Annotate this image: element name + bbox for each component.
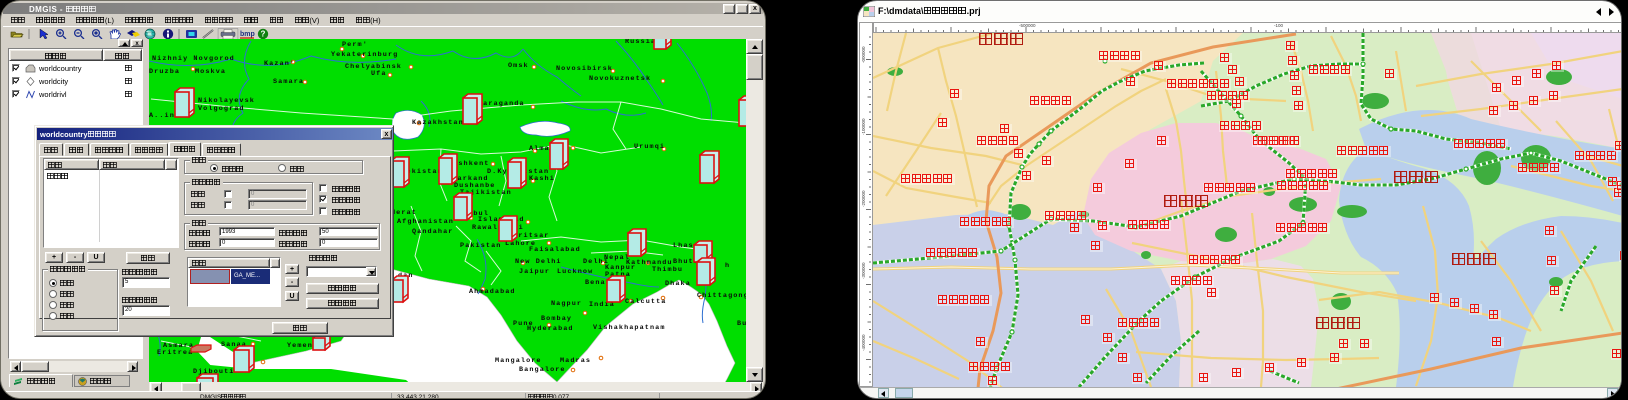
svg-text:Pakistan: Pakistan — [460, 242, 501, 250]
svg-text:Russia: Russia — [625, 39, 656, 46]
svg-text:Chittagong: Chittagong — [697, 292, 746, 300]
svg-text:Nagpur: Nagpur — [551, 300, 582, 308]
svg-text:New Delhi: New Delhi — [515, 258, 562, 266]
svg-text:-100000: -100000 — [861, 118, 866, 135]
svg-text:Kazan': Kazan' — [264, 60, 295, 68]
svg-text:-300000: -300000 — [861, 262, 866, 279]
svg-text:Novokuznetsk: Novokuznetsk — [589, 75, 651, 83]
svg-text:Volgograd: Volgograd — [198, 105, 245, 113]
svg-text:Nizhniy Novgorod: Nizhniy Novgorod — [152, 55, 235, 63]
svg-text:Moskva: Moskva — [195, 68, 226, 76]
svg-text:Karaganda: Karaganda — [478, 100, 525, 108]
svg-text:-400000: -400000 — [861, 334, 866, 351]
svg-text:Madras: Madras — [560, 357, 591, 365]
svg-text:Urumqi: Urumqi — [634, 143, 665, 151]
svg-text:Burma: Burma — [737, 320, 746, 328]
svg-text:Druzba: Druzba — [149, 68, 180, 76]
svg-text:-200000: -200000 — [861, 190, 866, 207]
svg-text:Qandahar: Qandahar — [412, 228, 453, 236]
svg-text:Yekaterinburg: Yekaterinburg — [331, 51, 398, 59]
svg-text:Ufa: Ufa — [371, 70, 387, 78]
svg-text:Calcutta: Calcutta — [625, 298, 666, 306]
svg-text:h: h — [725, 262, 730, 270]
svg-text:A..in: A..in — [149, 112, 175, 120]
svg-text:Omsk: Omsk — [508, 62, 529, 70]
svg-text:Mangalore: Mangalore — [495, 357, 542, 365]
svg-text:Faisalabad: Faisalabad — [529, 246, 581, 254]
svg-text:Jaipur: Jaipur — [519, 268, 550, 276]
svg-text:?: ? — [261, 30, 266, 39]
svg-text:Vishakhapatnam: Vishakhapatnam — [593, 324, 666, 332]
svg-text:Kashi: Kashi — [529, 175, 555, 183]
svg-text:Novosibirsk: Novosibirsk — [556, 65, 613, 73]
svg-text:Yemen: Yemen — [287, 342, 313, 350]
svg-text:bmp: bmp — [240, 31, 255, 38]
svg-text:Perm': Perm' — [342, 41, 368, 49]
svg-text:Bombay: Bombay — [541, 315, 572, 323]
svg-text:Herat: Herat — [391, 209, 417, 217]
svg-text:Nikolayevsk: Nikolayevsk — [198, 97, 255, 105]
svg-text:Eritrea: Eritrea — [157, 349, 193, 357]
svg-text:Samara: Samara — [273, 78, 304, 86]
svg-text:-000000: -000000 — [861, 46, 866, 63]
svg-text:Ahmadabad: Ahmadabad — [469, 288, 516, 296]
svg-text:Dhaka: Dhaka — [665, 280, 691, 288]
svg-text:Lucknow: Lucknow — [557, 268, 593, 276]
svg-text:Hyderabad: Hyderabad — [527, 325, 574, 333]
svg-text:Thimbu: Thimbu — [652, 266, 683, 274]
svg-text:Afghanistan: Afghanistan — [397, 218, 454, 226]
svg-text:Kazakhstan: Kazakhstan — [412, 119, 464, 127]
svg-text:Bangalore: Bangalore — [519, 366, 566, 374]
